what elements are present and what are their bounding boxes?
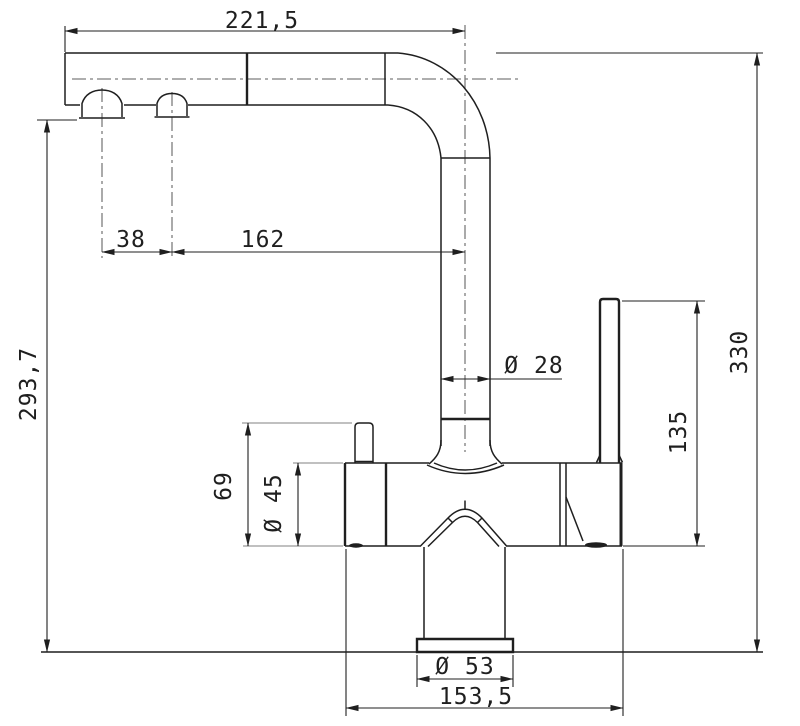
- base-column: [41, 547, 763, 652]
- dimension-lines: [47, 31, 757, 708]
- dimension-labels: 221,5 38 162 293,7 330 135 Ø 28 69 Ø 45 …: [16, 8, 753, 710]
- handle-lever: [597, 299, 623, 463]
- cartridge-diagonal: [566, 497, 583, 541]
- base-flange: [417, 639, 513, 652]
- dim-label-body-diameter: Ø 45: [261, 473, 287, 532]
- spout-outer-curve: [398, 53, 490, 158]
- knob-outline: [355, 423, 373, 463]
- technical-drawing: 221,5 38 162 293,7 330 135 Ø 28 69 Ø 45 …: [0, 0, 800, 726]
- dim-label-knob-height: 69: [211, 471, 237, 501]
- pipe-bell-left-flare: [429, 440, 441, 464]
- pipe-bell-right-flare: [490, 440, 502, 464]
- extension-lines: [37, 26, 763, 716]
- dim-label-outlet-height: 293,7: [16, 347, 42, 421]
- body-pin-left: [349, 543, 363, 547]
- dim-label-lever-height: 135: [666, 410, 692, 455]
- faucet-body: [345, 463, 622, 548]
- outlet-chevron: [420, 501, 507, 547]
- dim-label-horizontal-reach: 162: [241, 227, 286, 253]
- drawing-canvas: 221,5 38 162 293,7 330 135 Ø 28 69 Ø 45 …: [0, 0, 800, 726]
- dim-label-spout-length: 221,5: [225, 8, 299, 34]
- dim-label-pipe-diameter: Ø 28: [504, 353, 563, 379]
- spout-inner-curve: [388, 105, 441, 158]
- neck-edges: [424, 547, 505, 639]
- cartridge-joint-lines: [560, 463, 566, 546]
- chevron-ticks: [448, 501, 482, 523]
- dim-label-base-diameter: Ø 53: [435, 654, 494, 680]
- lever-outline: [600, 299, 619, 463]
- spout: [65, 53, 490, 158]
- pipe-bell-inner-arc: [434, 463, 497, 470]
- dim-label-body-length: 153,5: [439, 684, 513, 710]
- spray-nozzles: [79, 90, 190, 118]
- body-pin-right: [585, 542, 607, 548]
- diverter-knob: [355, 423, 374, 463]
- dim-label-nozzle-spacing: 38: [116, 227, 146, 253]
- chevron-inner: [428, 516, 499, 546]
- dim-label-overall-height: 330: [727, 330, 753, 375]
